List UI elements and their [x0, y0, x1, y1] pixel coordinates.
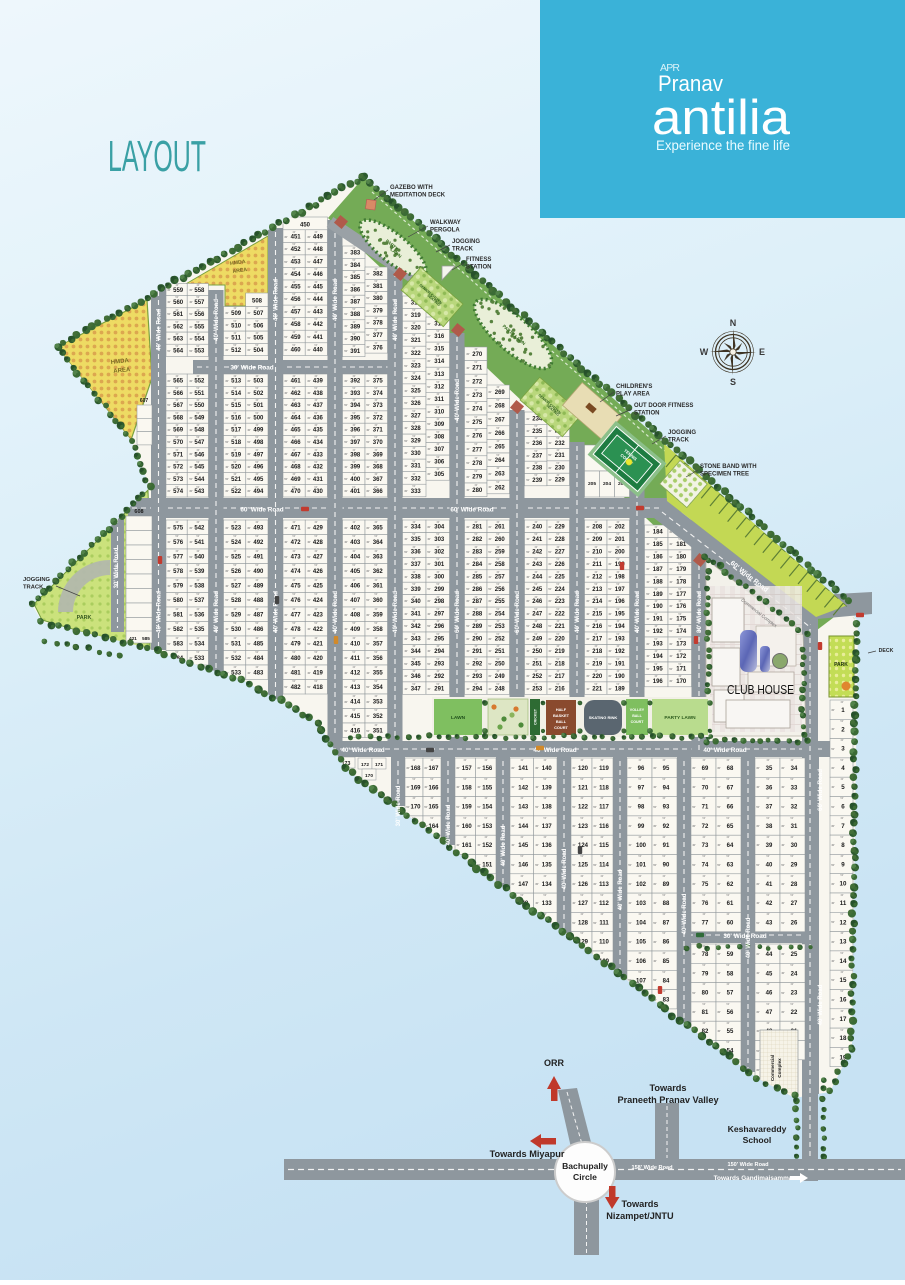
svg-text:50': 50': [247, 598, 251, 602]
svg-text:50': 50': [790, 964, 794, 967]
svg-text:40': 40': [840, 932, 844, 935]
svg-text:470: 470: [291, 489, 302, 495]
svg-text:40': 40': [255, 332, 259, 335]
svg-text:401: 401: [350, 489, 361, 495]
svg-text:453: 453: [291, 259, 302, 265]
svg-text:30': 30': [548, 525, 552, 529]
svg-text:50': 50': [466, 587, 470, 591]
svg-text:40': 40': [669, 617, 673, 621]
svg-text:50': 50': [412, 360, 416, 363]
svg-text:559: 559: [173, 288, 184, 294]
svg-text:136: 136: [542, 843, 553, 849]
svg-text:356: 356: [373, 656, 384, 662]
svg-text:50': 50': [756, 1049, 760, 1053]
svg-text:106: 106: [636, 959, 647, 965]
svg-text:30': 30': [307, 613, 311, 617]
svg-text:393: 393: [350, 391, 361, 397]
svg-text:585: 585: [142, 636, 150, 641]
svg-text:374: 374: [373, 391, 384, 397]
svg-text:30': 30': [366, 309, 370, 313]
svg-text:14: 14: [840, 958, 847, 965]
svg-text:40': 40': [412, 571, 416, 574]
svg-text:50': 50': [292, 564, 296, 567]
svg-text:50': 50': [412, 633, 416, 636]
svg-text:30': 30': [628, 766, 632, 770]
svg-text:30': 30': [586, 562, 590, 566]
svg-text:40' Wide Road: 40' Wide Road: [341, 747, 384, 754]
svg-text:40': 40': [167, 428, 171, 432]
svg-text:40': 40': [427, 334, 431, 338]
svg-text:DECK: DECK: [879, 648, 894, 654]
svg-text:30': 30': [669, 642, 673, 646]
svg-text:50': 50': [840, 952, 844, 955]
svg-text:50': 50': [233, 564, 237, 567]
svg-text:546: 546: [194, 452, 205, 458]
svg-text:40': 40': [556, 521, 560, 524]
svg-text:227: 227: [555, 549, 566, 555]
svg-text:30': 30': [535, 882, 539, 886]
svg-text:50': 50': [175, 412, 179, 415]
svg-text:118: 118: [599, 785, 609, 791]
svg-text:221: 221: [592, 686, 603, 692]
svg-text:50': 50': [466, 461, 470, 465]
svg-text:50': 50': [692, 805, 696, 809]
svg-text:40': 40': [412, 670, 416, 673]
svg-text:159: 159: [462, 805, 473, 811]
svg-text:50': 50': [196, 535, 200, 538]
svg-text:530: 530: [231, 627, 242, 633]
svg-text:40': 40': [374, 317, 378, 320]
svg-text:10: 10: [840, 881, 847, 888]
svg-text:500: 500: [253, 415, 264, 421]
svg-text:39: 39: [766, 843, 773, 849]
svg-text:198: 198: [615, 574, 626, 580]
svg-text:221: 221: [555, 624, 566, 630]
svg-text:50': 50': [314, 461, 318, 464]
svg-text:40': 40': [167, 337, 171, 341]
svg-text:50': 50': [344, 598, 348, 602]
svg-text:146: 146: [518, 862, 529, 868]
svg-text:30': 30': [831, 882, 835, 886]
svg-text:94: 94: [663, 785, 670, 791]
svg-text:40': 40': [548, 575, 552, 579]
svg-text:420: 420: [313, 656, 324, 662]
svg-text:442: 442: [313, 322, 324, 328]
svg-text:360: 360: [373, 598, 384, 604]
svg-text:PERGOLA: PERGOLA: [430, 228, 460, 234]
svg-text:50': 50': [653, 978, 657, 982]
svg-text:50': 50': [638, 778, 642, 781]
svg-text:50': 50': [717, 991, 721, 995]
svg-text:40': 40': [427, 372, 431, 376]
svg-text:493: 493: [253, 526, 264, 532]
svg-text:40': 40': [556, 620, 560, 623]
svg-text:30': 30': [284, 569, 288, 573]
svg-text:50': 50': [167, 403, 171, 407]
svg-text:462: 462: [291, 391, 302, 397]
svg-text:322: 322: [411, 351, 422, 357]
svg-text:40': 40': [766, 875, 770, 878]
svg-text:175: 175: [676, 617, 687, 623]
svg-text:40': 40': [196, 284, 200, 287]
svg-text:30': 30': [344, 251, 348, 255]
svg-text:40': 40': [255, 375, 259, 378]
svg-text:517: 517: [231, 428, 242, 434]
svg-text:40': 40': [593, 901, 597, 905]
svg-text:44: 44: [766, 952, 773, 958]
svg-text:50': 50': [580, 778, 584, 781]
svg-text:40': 40': [189, 391, 193, 395]
svg-text:607: 607: [140, 398, 149, 404]
svg-text:40': 40': [608, 537, 612, 541]
svg-text:50': 50': [436, 533, 440, 536]
svg-text:40': 40': [292, 521, 296, 524]
svg-text:50': 50': [662, 932, 666, 935]
svg-text:40': 40': [586, 537, 590, 541]
svg-text:50': 50': [352, 486, 356, 489]
svg-text:50': 50': [233, 461, 237, 464]
svg-text:50': 50': [255, 344, 259, 347]
svg-text:172: 172: [361, 762, 369, 768]
svg-text:50': 50': [669, 592, 673, 596]
svg-text:50': 50': [556, 533, 560, 536]
svg-text:40': 40': [474, 402, 478, 405]
svg-text:50': 50': [593, 805, 597, 809]
svg-text:40' Wide Road: 40' Wide Road: [156, 309, 163, 351]
svg-text:516: 516: [231, 415, 242, 421]
svg-text:40': 40': [526, 537, 530, 541]
svg-text:40': 40': [255, 473, 259, 476]
svg-text:292: 292: [472, 661, 483, 667]
svg-text:253: 253: [495, 624, 506, 630]
svg-text:40': 40': [196, 579, 200, 582]
svg-text:50': 50': [692, 921, 696, 925]
svg-text:50': 50': [702, 894, 706, 897]
svg-text:387: 387: [350, 300, 361, 306]
svg-text:501: 501: [253, 403, 264, 409]
svg-text:50': 50': [702, 855, 706, 858]
svg-text:304: 304: [434, 525, 445, 531]
svg-text:287: 287: [472, 599, 483, 605]
svg-text:30': 30': [526, 417, 530, 421]
svg-text:PARTY LAWN: PARTY LAWN: [664, 715, 696, 721]
svg-text:40' Wide Road: 40' Wide Road: [703, 747, 746, 754]
svg-text:30': 30': [189, 489, 193, 493]
svg-text:50': 50': [436, 633, 440, 636]
svg-text:40': 40': [196, 449, 200, 452]
svg-text:40': 40': [702, 875, 706, 878]
svg-text:40': 40': [427, 537, 431, 541]
svg-text:50': 50': [412, 658, 416, 661]
svg-text:40': 40': [307, 391, 311, 395]
svg-text:50': 50': [466, 624, 470, 628]
svg-text:40': 40': [352, 449, 356, 452]
svg-text:40': 40': [352, 473, 356, 476]
svg-text:50': 50': [556, 437, 560, 440]
svg-text:25: 25: [791, 952, 798, 958]
svg-text:30': 30': [548, 429, 552, 433]
svg-text:50': 50': [766, 778, 770, 781]
svg-text:508: 508: [252, 299, 263, 305]
svg-text:antilia: antilia: [652, 91, 791, 145]
svg-text:40': 40': [654, 576, 658, 579]
svg-text:200: 200: [615, 549, 626, 555]
svg-text:50': 50': [781, 991, 785, 995]
svg-text:50': 50': [427, 587, 431, 591]
svg-text:30': 30': [344, 324, 348, 328]
svg-text:363: 363: [373, 555, 384, 561]
svg-text:244: 244: [532, 574, 543, 580]
svg-text:40': 40': [233, 608, 237, 611]
svg-text:78: 78: [702, 952, 709, 958]
svg-text:50': 50': [654, 538, 658, 541]
svg-text:40': 40': [314, 399, 318, 402]
svg-text:487: 487: [253, 613, 264, 619]
svg-text:50': 50': [654, 613, 658, 616]
svg-text:272: 272: [472, 379, 483, 385]
svg-text:50': 50': [284, 555, 288, 559]
svg-text:50': 50': [366, 403, 370, 407]
svg-text:40': 40': [196, 637, 200, 640]
svg-text:50': 50': [175, 321, 179, 324]
svg-text:50': 50': [344, 685, 348, 689]
svg-text:40': 40': [196, 473, 200, 476]
svg-text:50': 50': [608, 550, 612, 554]
svg-text:40': 40': [474, 521, 478, 524]
svg-text:40': 40': [526, 612, 530, 616]
svg-text:50': 50': [352, 461, 356, 464]
svg-text:40': 40': [404, 313, 408, 317]
svg-text:50': 50': [831, 747, 835, 751]
svg-text:TRACK: TRACK: [452, 247, 474, 253]
svg-text:50': 50': [167, 312, 171, 316]
svg-text:553: 553: [194, 349, 205, 355]
svg-text:Towards Gandimaisamma: Towards Gandimaisamma: [714, 1175, 793, 1182]
svg-text:50': 50': [543, 817, 547, 820]
svg-text:251: 251: [495, 649, 506, 655]
svg-text:187: 187: [653, 567, 664, 573]
svg-text:40': 40': [247, 465, 251, 469]
svg-text:30': 30': [756, 882, 760, 886]
svg-text:60' Wide Road: 60' Wide Road: [514, 591, 521, 633]
svg-text:341: 341: [411, 612, 422, 618]
svg-text:30': 30': [781, 766, 785, 770]
svg-text:40' Wide Road: 40' Wide Road: [618, 869, 624, 910]
svg-text:50': 50': [307, 477, 311, 481]
svg-text:50': 50': [474, 608, 478, 611]
svg-text:328: 328: [411, 426, 422, 432]
svg-text:50': 50': [662, 778, 666, 781]
svg-text:366: 366: [373, 489, 384, 495]
svg-text:40': 40': [344, 584, 348, 588]
svg-text:50': 50': [196, 651, 200, 654]
svg-text:282: 282: [472, 537, 483, 543]
svg-text:60' Wide Road: 60' Wide Road: [240, 507, 283, 514]
svg-text:256: 256: [495, 587, 506, 593]
svg-text:50': 50': [233, 320, 237, 323]
svg-text:50': 50': [511, 805, 515, 809]
svg-text:40': 40': [646, 617, 650, 621]
svg-text:416: 416: [350, 729, 361, 735]
svg-text:50': 50': [586, 550, 590, 554]
svg-text:50': 50': [412, 410, 416, 413]
svg-text:40': 40': [344, 627, 348, 631]
svg-text:30': 30': [427, 525, 431, 529]
svg-text:30': 30': [586, 599, 590, 603]
svg-text:548: 548: [194, 428, 205, 434]
svg-text:30': 30': [477, 766, 481, 770]
svg-text:30': 30': [167, 379, 171, 383]
svg-text:249: 249: [532, 637, 543, 643]
svg-text:40': 40': [726, 913, 730, 916]
svg-text:50': 50': [593, 863, 597, 867]
svg-text:40': 40': [766, 759, 770, 762]
svg-text:30': 30': [247, 489, 251, 493]
svg-text:40': 40': [488, 445, 492, 449]
svg-text:40': 40': [646, 542, 650, 546]
svg-text:50': 50': [196, 436, 200, 439]
svg-text:479: 479: [291, 642, 302, 648]
svg-text:30': 30': [344, 452, 348, 456]
svg-text:30': 30': [466, 393, 470, 397]
svg-text:40': 40': [496, 596, 500, 599]
svg-text:50': 50': [594, 633, 598, 636]
svg-text:40': 40': [692, 901, 696, 905]
svg-text:50': 50': [352, 680, 356, 683]
svg-text:50': 50': [594, 533, 598, 536]
svg-text:50': 50': [534, 558, 538, 561]
svg-text:PARK: PARK: [77, 615, 92, 621]
svg-text:50': 50': [717, 805, 721, 809]
svg-text:497: 497: [253, 452, 264, 458]
svg-text:40': 40': [593, 843, 597, 847]
svg-text:40': 40': [404, 426, 408, 430]
svg-text:40': 40': [175, 284, 179, 287]
svg-text:40': 40': [726, 836, 730, 839]
svg-text:50': 50': [580, 932, 584, 935]
svg-text:426: 426: [313, 569, 324, 575]
svg-text:250: 250: [495, 661, 506, 667]
svg-text:419: 419: [313, 671, 324, 677]
svg-text:40': 40': [412, 347, 416, 350]
svg-text:30': 30': [572, 882, 576, 886]
svg-text:30': 30': [466, 674, 470, 678]
svg-text:67: 67: [727, 785, 734, 791]
svg-text:50': 50': [352, 535, 356, 538]
svg-text:40': 40': [404, 649, 408, 653]
svg-text:40': 40': [556, 449, 560, 452]
svg-text:235: 235: [532, 429, 543, 435]
svg-text:157: 157: [462, 766, 473, 772]
svg-text:50': 50': [344, 477, 348, 481]
svg-text:40': 40': [284, 671, 288, 675]
svg-text:171: 171: [375, 762, 383, 768]
svg-text:40': 40': [534, 571, 538, 574]
svg-text:524: 524: [231, 540, 242, 546]
svg-text:40': 40': [466, 537, 470, 541]
svg-text:480: 480: [291, 656, 302, 662]
svg-text:50': 50': [488, 587, 492, 591]
svg-text:266: 266: [495, 431, 506, 437]
svg-text:40': 40': [474, 546, 478, 549]
svg-text:156: 156: [482, 766, 493, 772]
svg-text:40': 40': [526, 649, 530, 653]
svg-text:402: 402: [350, 526, 361, 532]
svg-text:215: 215: [592, 612, 603, 618]
svg-text:192: 192: [653, 629, 664, 635]
svg-text:50': 50': [556, 462, 560, 465]
svg-text:57: 57: [727, 991, 734, 997]
svg-text:86: 86: [663, 940, 670, 946]
svg-text:298: 298: [434, 599, 445, 605]
svg-text:339: 339: [411, 587, 422, 593]
svg-text:40': 40': [678, 650, 682, 653]
svg-text:261: 261: [495, 525, 506, 531]
svg-text:41: 41: [766, 882, 773, 888]
svg-text:430: 430: [313, 489, 324, 495]
svg-text:293: 293: [472, 674, 483, 680]
svg-text:138: 138: [542, 805, 553, 811]
svg-text:30' Wide Road: 30' Wide Road: [396, 785, 402, 826]
svg-text:335: 335: [411, 537, 422, 543]
svg-text:408: 408: [350, 613, 361, 619]
svg-text:40': 40': [840, 855, 844, 858]
svg-text:40': 40': [196, 333, 200, 336]
svg-text:46: 46: [766, 991, 773, 997]
svg-text:30': 30': [456, 824, 460, 828]
svg-text:50': 50': [307, 297, 311, 301]
svg-text:24: 24: [791, 971, 798, 977]
svg-text:583: 583: [173, 642, 184, 648]
svg-text:50': 50': [284, 297, 288, 301]
svg-text:561: 561: [173, 312, 184, 318]
svg-text:40': 40': [427, 649, 431, 653]
svg-text:185: 185: [653, 542, 664, 548]
svg-text:50': 50': [600, 778, 604, 781]
svg-text:554: 554: [194, 336, 205, 342]
svg-text:50': 50': [196, 564, 200, 567]
svg-text:50': 50': [225, 440, 229, 444]
svg-text:50': 50': [404, 550, 408, 554]
svg-text:50': 50': [404, 624, 408, 628]
svg-text:465: 465: [291, 428, 302, 434]
svg-text:40': 40': [600, 952, 604, 955]
svg-text:30': 30': [167, 489, 171, 493]
svg-text:580: 580: [173, 598, 184, 604]
svg-text:336: 336: [411, 549, 422, 555]
svg-text:40': 40': [766, 1022, 770, 1025]
svg-text:15: 15: [840, 977, 847, 984]
svg-text:135: 135: [542, 862, 553, 868]
svg-text:30': 30': [406, 766, 410, 770]
svg-text:40': 40': [292, 424, 296, 427]
svg-text:40': 40': [702, 797, 706, 800]
svg-text:30': 30': [284, 272, 288, 276]
svg-text:40': 40': [840, 1048, 844, 1051]
svg-text:40': 40': [496, 521, 500, 524]
svg-text:50': 50': [427, 662, 431, 666]
svg-text:361: 361: [373, 584, 384, 590]
svg-text:154: 154: [482, 805, 493, 811]
svg-text:40': 40': [520, 875, 524, 878]
svg-text:40': 40': [594, 596, 598, 599]
svg-text:40': 40': [756, 901, 760, 905]
svg-text:50': 50': [167, 555, 171, 559]
svg-text:40': 40': [543, 797, 547, 800]
svg-text:427: 427: [313, 555, 324, 561]
svg-text:572: 572: [173, 465, 184, 471]
svg-text:50': 50': [756, 805, 760, 809]
